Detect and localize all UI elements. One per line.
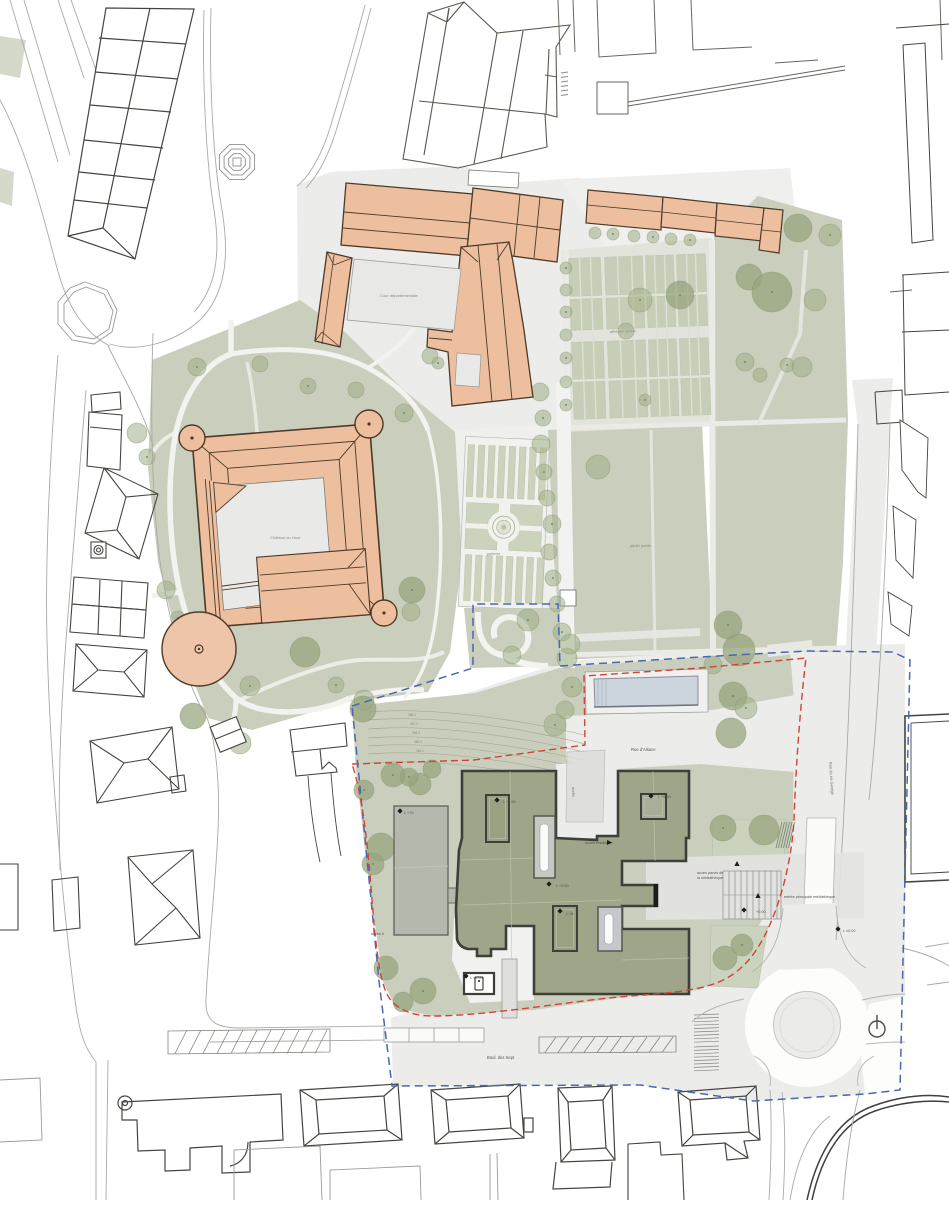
svg-text:Boul. des Sept: Boul. des Sept — [487, 1055, 515, 1060]
svg-text:L +9.50: L +9.50 — [658, 795, 671, 799]
svg-text:365.0: 365.0 — [414, 740, 422, 744]
svg-text:jardin public: jardin public — [629, 543, 651, 548]
svg-text:L +9.50: L +9.50 — [556, 884, 569, 888]
svg-text:la médiathèque: la médiathèque — [697, 876, 723, 880]
svg-text:accès h: accès h — [371, 932, 384, 936]
svg-text:364.0: 364.0 — [416, 749, 424, 753]
svg-text:L ±0.00: L ±0.00 — [843, 929, 856, 933]
svg-text:Château du Haut: Château du Haut — [270, 535, 301, 540]
svg-text:accès parvis de: accès parvis de — [697, 871, 723, 875]
svg-text:L +9.50: L +9.50 — [503, 800, 516, 804]
svg-text:accès: accès — [571, 787, 575, 797]
svg-text:L +8: L +8 — [566, 912, 573, 916]
svg-text:entrée principale médiathèque: entrée principale médiathèque — [784, 895, 835, 899]
svg-text:parterre: parterre — [487, 552, 500, 556]
svg-text:Rue d'Alsace: Rue d'Alsace — [631, 747, 656, 752]
svg-text:367.0: 367.0 — [410, 722, 418, 726]
svg-text:366.0: 366.0 — [412, 731, 420, 735]
svg-text:L +79: L +79 — [404, 811, 413, 815]
svg-text:+0.00: +0.00 — [756, 910, 766, 914]
svg-text:368.0: 368.0 — [408, 713, 416, 717]
svg-text:Cour départementale: Cour départementale — [380, 293, 418, 298]
svg-text:L +1.00: L +1.00 — [470, 976, 483, 980]
